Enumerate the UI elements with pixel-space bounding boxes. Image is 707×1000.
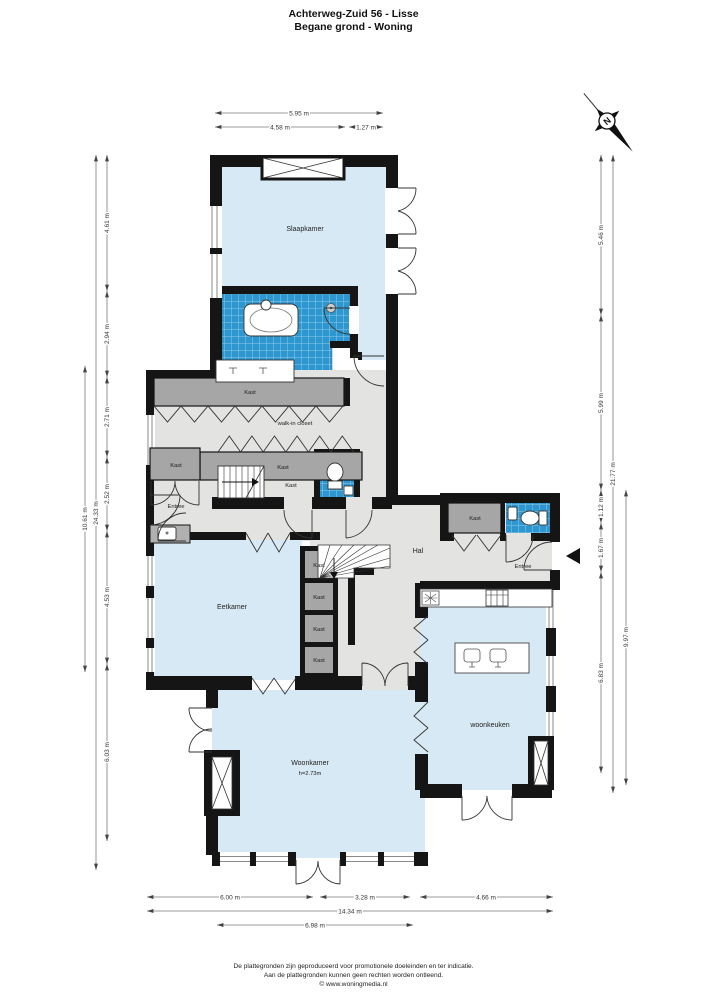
footer-disclaimer: De plattegronden zijn geproduceerd voor …	[0, 962, 707, 990]
label-kast: Kast	[244, 390, 256, 396]
label-kast: Kast	[277, 465, 289, 471]
kitchen-counter	[420, 589, 552, 607]
compass-icon: N	[572, 83, 645, 162]
window-box-icon	[262, 157, 344, 179]
dim-label: 3.28 m	[355, 895, 375, 902]
entrance-arrow-icon	[566, 548, 580, 564]
dim-label: 5.99 m	[598, 393, 605, 413]
dim-label: 1.27 m	[356, 125, 376, 132]
label-kast: Kast	[313, 658, 325, 664]
dim-label: 6.03 m	[104, 742, 111, 762]
label-entree: Entree	[514, 564, 531, 570]
hob-icon	[422, 591, 439, 605]
dim-label: 2.52 m	[104, 484, 111, 504]
label-hal: Hal	[413, 548, 424, 555]
label-entree: Entree	[167, 504, 184, 510]
oven-icon	[486, 590, 508, 606]
window-box-icon	[204, 750, 240, 816]
label-kast: Kast	[170, 463, 182, 469]
dim-label: 1.12 m	[598, 497, 605, 517]
label-kast: Kast	[313, 595, 325, 601]
dim-label: 14.34 m	[338, 909, 362, 916]
label-slaapkamer: Slaapkamer	[286, 226, 324, 233]
dim-label: 6.98 m	[305, 923, 325, 930]
dim-label: 1.67 m	[598, 538, 605, 558]
floorplan-drawing: Slaapkamer Kast walk-in closet Kast Kast…	[0, 0, 707, 1000]
dim-label: 6.83 m	[598, 663, 605, 683]
dim-label: 4.58 m	[270, 125, 290, 132]
label-eetkamer: Eetkamer	[217, 604, 248, 611]
dim-label: 24.33 m	[93, 501, 100, 525]
kitchen-island	[455, 643, 529, 673]
dim-label: 4.53 m	[104, 587, 111, 607]
footer-line2: Aan de plattegronden kunnen geen rechten…	[0, 971, 707, 980]
dim-label: 4.66 m	[476, 895, 496, 902]
dim-label: 4.61 m	[104, 213, 111, 233]
dim-label: 2.71 m	[104, 407, 111, 427]
label-woonkeuken: woonkeuken	[469, 722, 509, 729]
dim-label: 2.94 m	[104, 324, 111, 344]
dim-label: 21.77 m	[610, 462, 617, 486]
dim-label: 9.97 m	[623, 627, 630, 647]
footer-line3: © www.woningmedia.nl	[0, 980, 707, 989]
vanity-icon	[216, 360, 294, 382]
label-kast: Kast	[469, 516, 481, 522]
window-box-icon	[528, 736, 554, 790]
footer-line1: De plattegronden zijn geproduceerd voor …	[0, 962, 707, 971]
label-woonkamer-height: h=2.73m	[299, 771, 322, 777]
dim-label: 10.61 m	[82, 507, 89, 531]
bathtub-icon	[244, 300, 298, 336]
dim-label: 5.46 m	[598, 225, 605, 245]
label-kast: Kast	[285, 483, 297, 489]
label-walk-in-closet: walk-in closet	[277, 421, 313, 427]
dim-label: 6.00 m	[220, 895, 240, 902]
straight-stairs-icon	[218, 466, 264, 498]
dim-label: 5.95 m	[289, 111, 309, 118]
label-woonkamer: Woonkamer	[291, 760, 329, 767]
label-kast: Kast	[313, 627, 325, 633]
floorplan-page: Achterweg-Zuid 56 - Lisse Begane grond -…	[0, 0, 707, 1000]
label-kast: Kast	[313, 563, 325, 569]
